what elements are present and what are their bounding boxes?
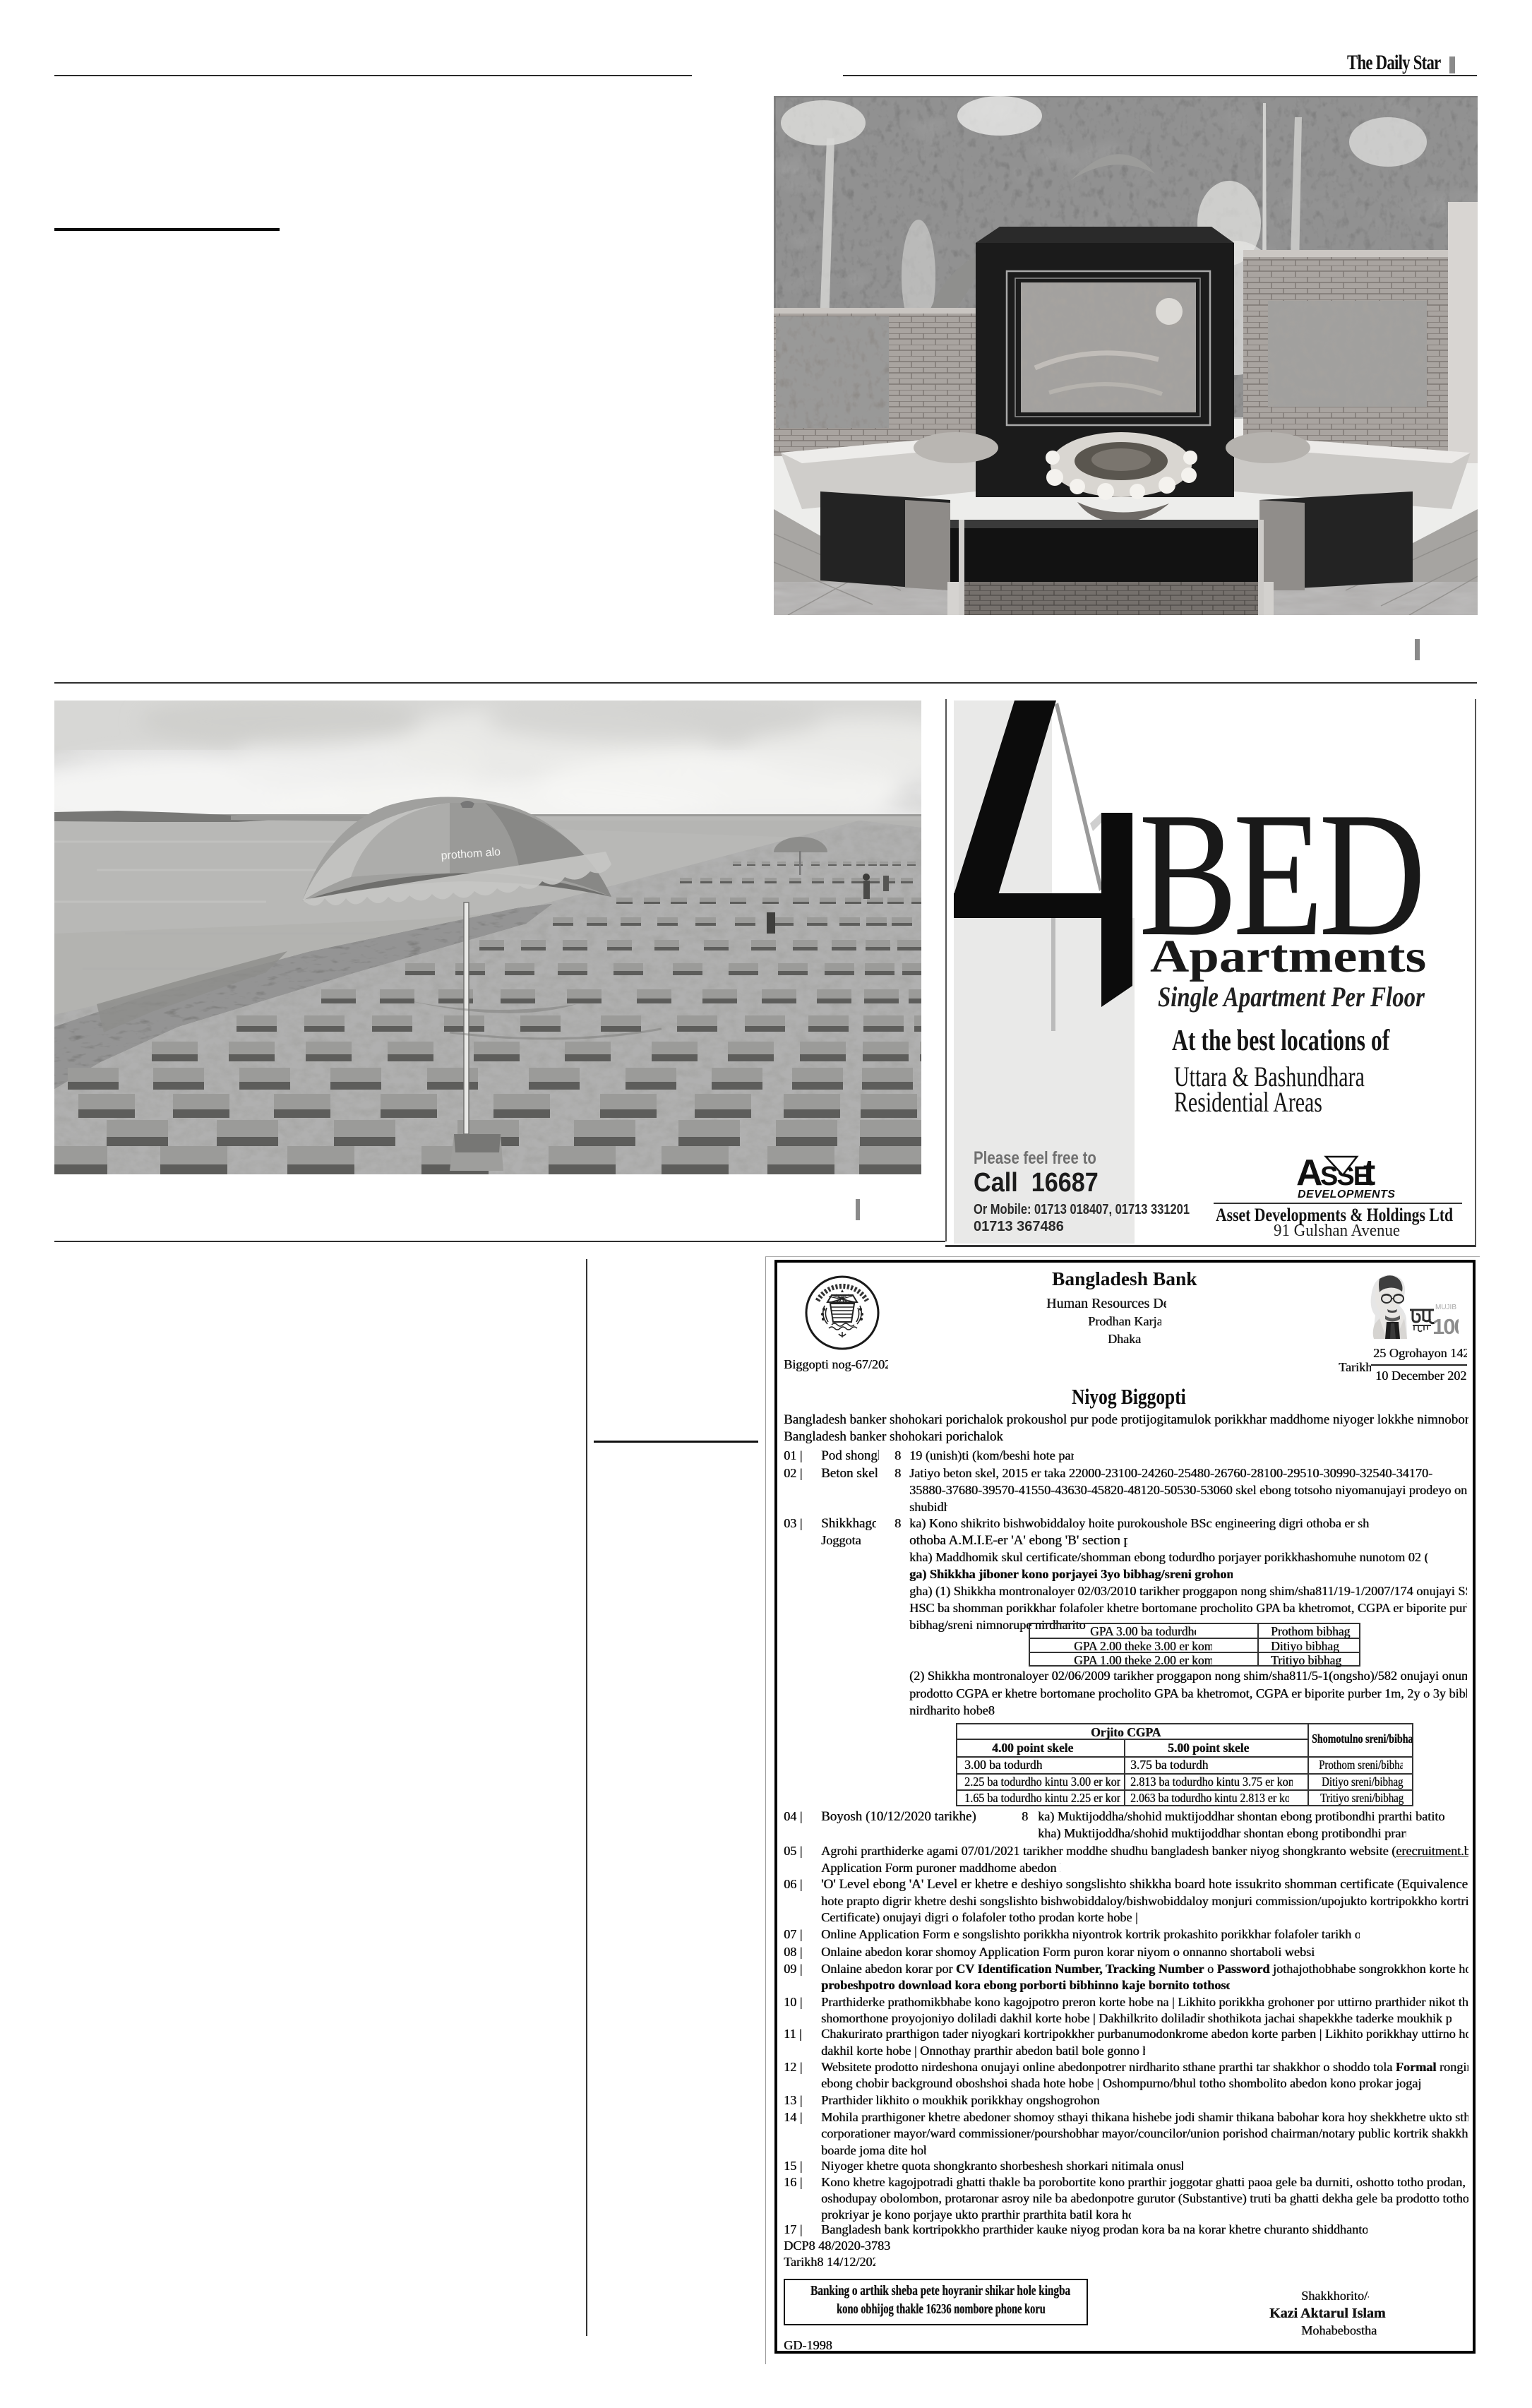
svg-text:t: t: [1363, 1152, 1375, 1193]
svg-text:A: A: [1296, 1152, 1322, 1193]
svg-text:100: 100: [1432, 1314, 1459, 1339]
svg-text:MUJIB: MUJIB: [1435, 1304, 1456, 1311]
svg-text:DEVELOPMENTS: DEVELOPMENTS: [1298, 1188, 1395, 1200]
